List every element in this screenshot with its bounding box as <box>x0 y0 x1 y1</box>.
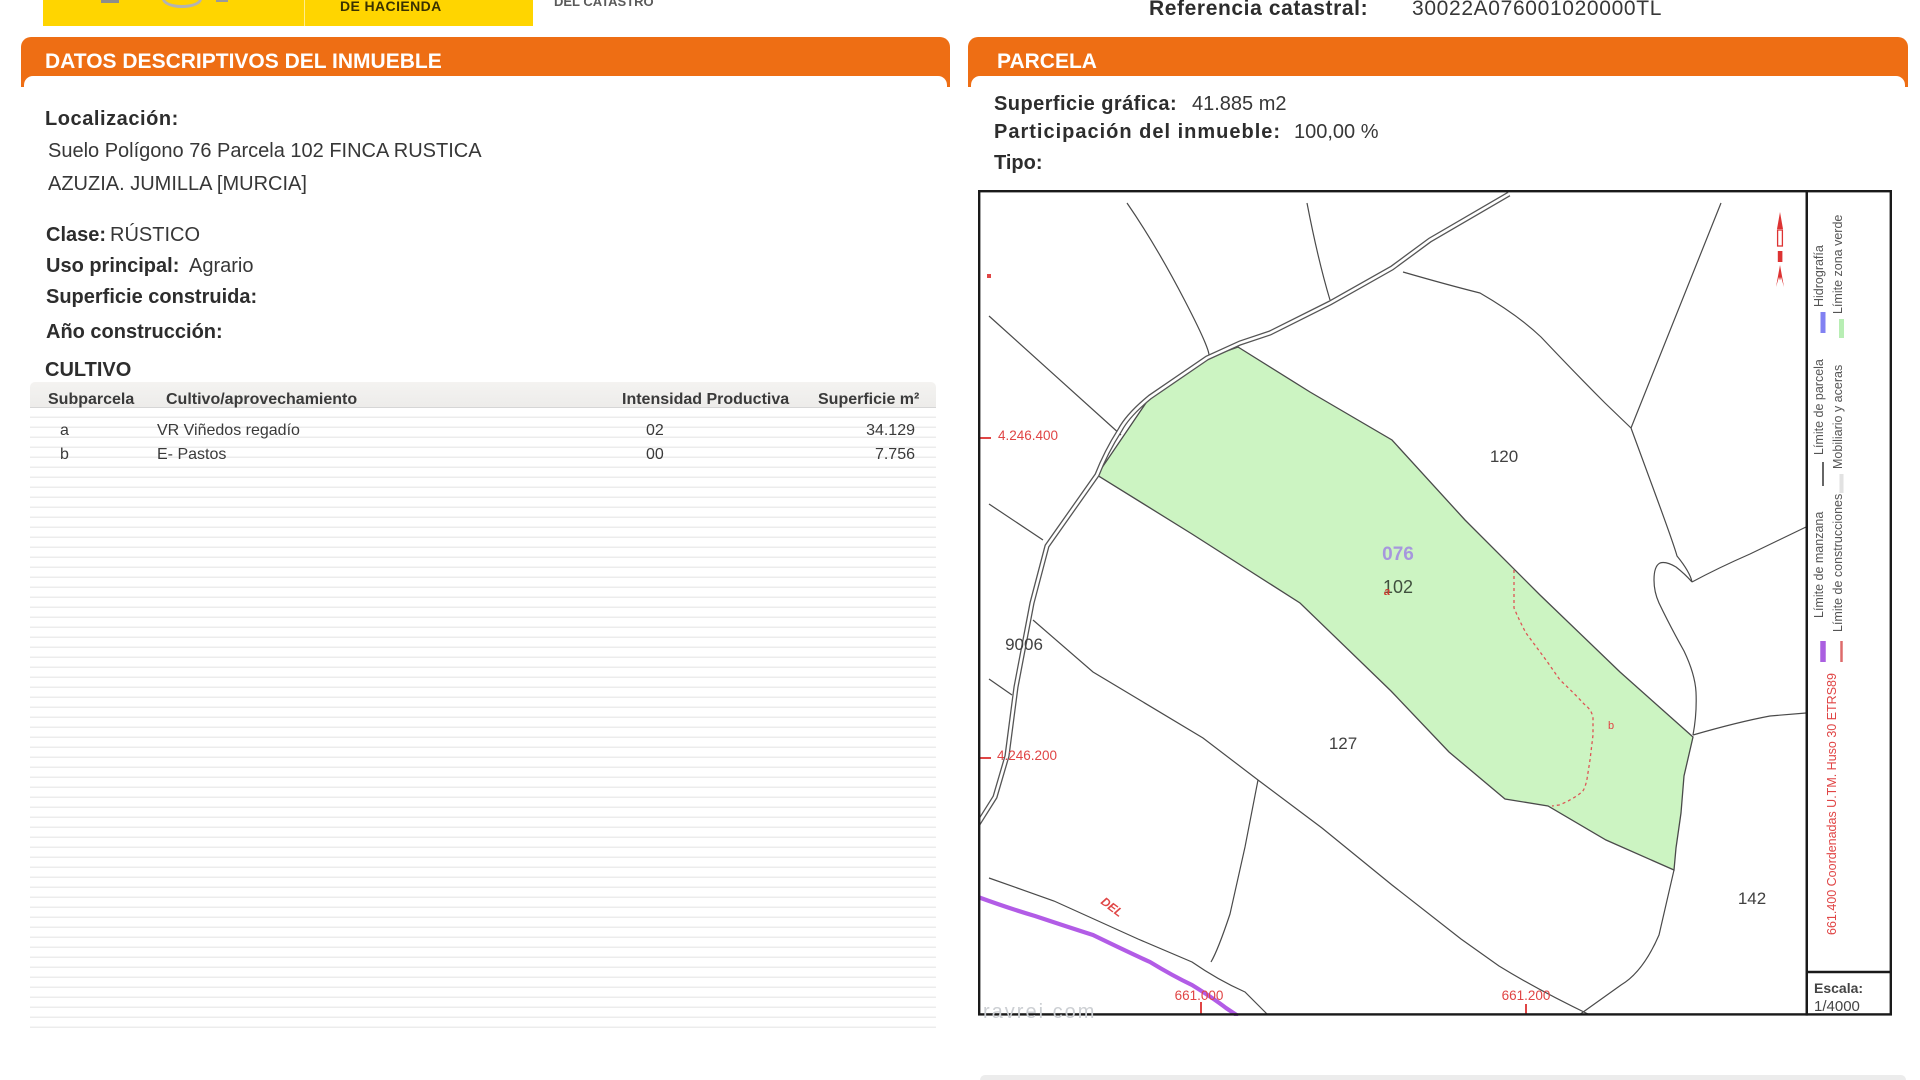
svg-text:661.200: 661.200 <box>1502 988 1551 1003</box>
svg-text:4.246.200: 4.246.200 <box>997 748 1057 763</box>
svg-text:Límite de parcela: Límite de parcela <box>1812 359 1826 455</box>
svg-text:661.400 Coordenadas U.TM. Huso: 661.400 Coordenadas U.TM. Huso 30 ETRS89 <box>1825 673 1839 935</box>
svg-text:120: 120 <box>1490 447 1518 466</box>
svg-text:127: 127 <box>1329 734 1357 753</box>
svg-text:Límite de manzana: Límite de manzana <box>1812 512 1826 618</box>
svg-text:4.246.400: 4.246.400 <box>998 428 1058 443</box>
svg-text:b: b <box>1608 720 1614 732</box>
svg-text:Escala:: Escala: <box>1814 980 1863 996</box>
svg-text:1/4000: 1/4000 <box>1814 998 1860 1015</box>
svg-text:Límite de construcciones: Límite de construcciones <box>1831 494 1845 632</box>
svg-text:9006: 9006 <box>1005 635 1043 654</box>
svg-text:Límite zona verde: Límite zona verde <box>1831 215 1845 314</box>
svg-text:a: a <box>1384 586 1390 598</box>
svg-text:661.000: 661.000 <box>1175 988 1224 1003</box>
svg-text:076: 076 <box>1382 544 1414 565</box>
svg-text:Mobiliario y aceras: Mobiliario y aceras <box>1831 365 1845 469</box>
svg-text:DEL: DEL <box>1098 894 1126 920</box>
svg-text:142: 142 <box>1738 889 1766 908</box>
svg-text:Hidrografía: Hidrografía <box>1812 245 1826 307</box>
